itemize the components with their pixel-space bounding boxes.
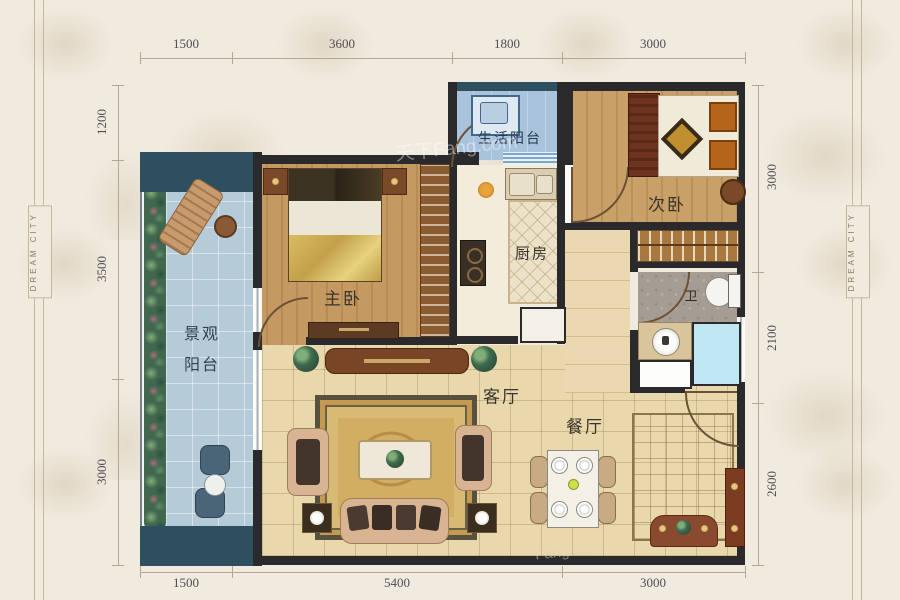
stove xyxy=(460,240,486,286)
label-dining-room: 餐厅 xyxy=(566,413,604,438)
dim-bottom-2: 5400 xyxy=(384,575,410,591)
bathroom-cabinet xyxy=(638,360,692,389)
tick xyxy=(232,566,233,578)
dim-left-2: 3500 xyxy=(94,256,110,282)
tick xyxy=(752,565,764,566)
dim-top-3: 1800 xyxy=(494,36,520,52)
dim-left-1: 1200 xyxy=(94,109,110,135)
brand-text-left: DREAM CITY xyxy=(28,205,52,298)
wall xyxy=(565,82,573,165)
balcony-chair xyxy=(200,445,230,475)
kitchen-sink xyxy=(505,168,557,200)
round-bedside-table xyxy=(720,179,746,205)
second-bed xyxy=(658,95,739,177)
dim-right-3: 2600 xyxy=(764,471,780,497)
balcony-table xyxy=(214,215,237,238)
label-master-bedroom: 主卧 xyxy=(324,285,362,310)
tick xyxy=(112,379,124,380)
bathroom-vanity xyxy=(638,322,692,360)
wall xyxy=(630,330,638,393)
sofa xyxy=(340,498,449,544)
dresser xyxy=(308,322,399,339)
tick xyxy=(752,403,764,404)
wall xyxy=(448,336,518,344)
dim-top-4: 3000 xyxy=(640,36,666,52)
wall-balcony-pillar xyxy=(140,526,253,566)
label-view-balcony-2: 阳台 xyxy=(184,351,220,375)
tick xyxy=(745,52,746,64)
wall xyxy=(253,556,745,565)
side-table-lamp xyxy=(302,503,332,533)
entry-door-leaf xyxy=(685,391,737,393)
master-balcony-window xyxy=(253,288,262,332)
coffee-table xyxy=(358,440,432,480)
label-bathroom: 卫 xyxy=(684,286,699,305)
dining-table xyxy=(547,450,599,528)
tick xyxy=(112,565,124,566)
dimension-line-top xyxy=(140,58,745,59)
wall xyxy=(557,82,565,344)
label-kitchen: 厨房 xyxy=(515,243,549,264)
armchair xyxy=(287,428,329,496)
dim-right-1: 3000 xyxy=(764,164,780,190)
left-border-line: DREAM CITY xyxy=(34,0,44,600)
right-border-line: DREAM CITY xyxy=(852,0,862,600)
dining-chair xyxy=(598,456,616,488)
dim-right-2: 2100 xyxy=(764,325,780,351)
wardrobe-hangers xyxy=(637,230,739,262)
wall xyxy=(565,222,745,230)
tick xyxy=(752,272,764,273)
second-bedroom-door-leaf xyxy=(571,167,573,223)
label-view-balcony-1: 景观 xyxy=(184,320,220,344)
dim-top-2: 3600 xyxy=(329,36,355,52)
shower xyxy=(692,322,741,386)
dimension-line-right xyxy=(758,85,759,565)
brand-text-right: DREAM CITY xyxy=(846,205,870,298)
nightstand xyxy=(382,168,407,195)
label-second-bedroom: 次卧 xyxy=(648,191,686,216)
living-balcony-door-window xyxy=(253,350,262,450)
dim-top-1: 1500 xyxy=(173,36,199,52)
plant xyxy=(471,346,497,372)
balcony-round-table xyxy=(204,474,226,496)
tick xyxy=(140,52,141,64)
wall xyxy=(565,82,745,91)
dining-chair xyxy=(530,456,548,488)
dining-chair xyxy=(530,492,548,524)
hallway-floor xyxy=(565,230,630,393)
nightstand xyxy=(263,168,288,195)
second-bed-headboard xyxy=(628,93,660,177)
floorplan-page: DREAM CITY DREAM CITY 1500 3600 1800 300… xyxy=(0,0,900,600)
master-bed xyxy=(288,168,382,282)
master-wardrobe xyxy=(420,164,450,337)
tick xyxy=(112,160,124,161)
tick xyxy=(752,85,764,86)
dimension-line-left xyxy=(118,85,119,565)
tick xyxy=(562,566,563,578)
tick xyxy=(745,566,746,578)
side-table-lamp xyxy=(467,503,497,533)
dining-chair xyxy=(598,492,616,524)
tick xyxy=(562,52,563,64)
toilet-tank xyxy=(728,274,741,308)
dim-left-3: 3000 xyxy=(94,459,110,485)
dim-bottom-3: 3000 xyxy=(640,575,666,591)
entry-bench xyxy=(650,515,718,547)
tick xyxy=(140,566,141,578)
entry-console xyxy=(725,468,745,547)
tick xyxy=(452,52,453,64)
label-living-room: 客厅 xyxy=(483,383,521,408)
wall xyxy=(448,82,565,91)
fridge xyxy=(520,307,566,343)
tick xyxy=(232,52,233,64)
kitchen-burner-dot xyxy=(478,182,494,198)
plant xyxy=(293,346,319,372)
dimension-line-bottom xyxy=(140,572,745,573)
tv-console xyxy=(325,348,469,374)
armchair xyxy=(455,425,492,491)
dim-bottom-1: 1500 xyxy=(173,575,199,591)
tick xyxy=(112,85,124,86)
